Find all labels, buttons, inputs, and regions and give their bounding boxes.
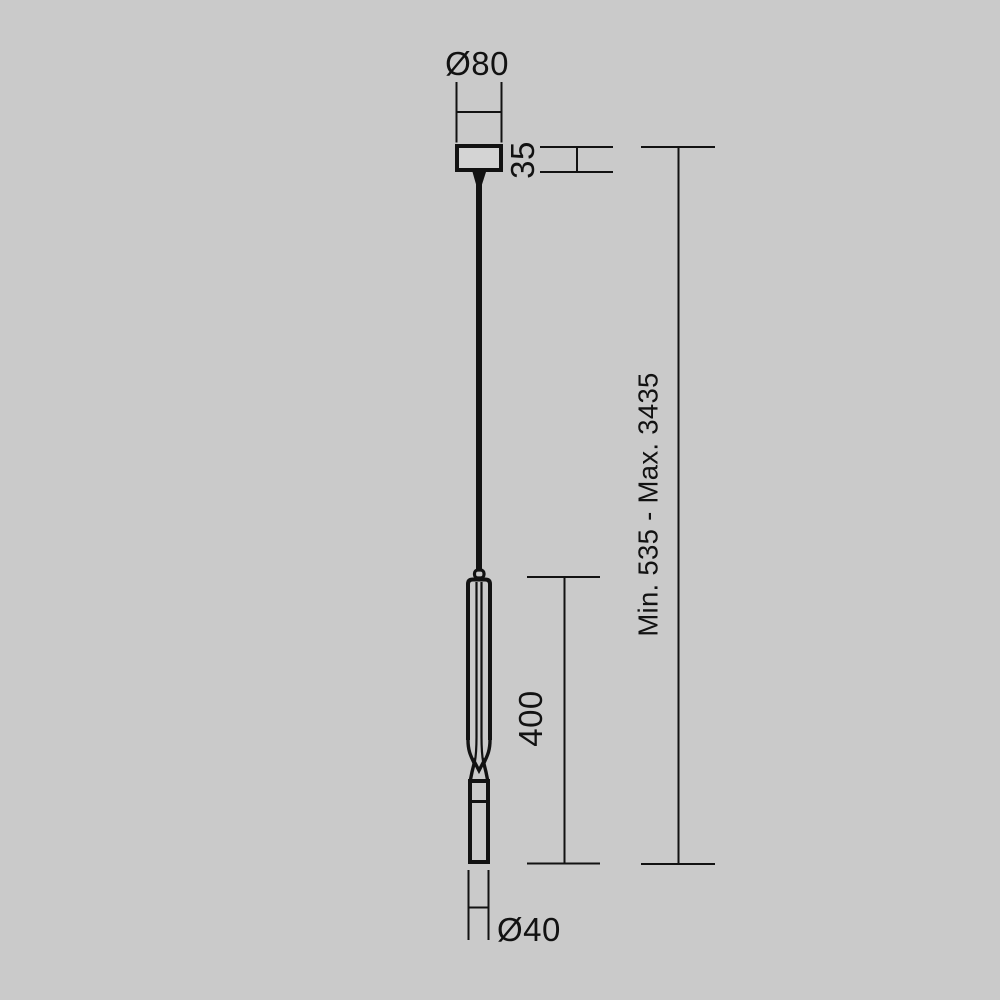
pendant-lamp — [457, 146, 501, 862]
lamp-body-length-label: 400 — [512, 690, 549, 747]
dimension-lamp-body-diameter: Ø40 — [469, 870, 561, 948]
dimension-suspension-range: Min. 535 - Max. 3435 — [633, 147, 715, 864]
canopy-height-label: 35 — [504, 141, 541, 179]
inner-stem-left — [475, 582, 477, 764]
dimension-canopy-height: 35 — [504, 141, 613, 179]
dimension-canopy-diameter: Ø80 — [445, 45, 509, 143]
dimension-lamp-body-length: 400 — [512, 577, 600, 864]
lamp-body-diameter-label: Ø40 — [497, 911, 561, 948]
ceiling-canopy — [457, 146, 501, 170]
pendant-lamp-dimension-drawing: Ø80 35 400 Ø40 Min. 535 - Ma — [0, 0, 1000, 1000]
suspension-range-label: Min. 535 - Max. 3435 — [633, 372, 664, 636]
canopy-diameter-label: Ø80 — [445, 45, 509, 82]
glass-tube-outline — [468, 580, 490, 741]
cable-connector-nub — [475, 570, 485, 578]
drawing-canvas: Ø80 35 400 Ø40 Min. 535 - Ma — [0, 0, 1000, 1000]
lamp-holder-cylinder — [470, 781, 488, 862]
waist-funnel — [471, 762, 488, 780]
inner-stem-right — [482, 582, 484, 764]
